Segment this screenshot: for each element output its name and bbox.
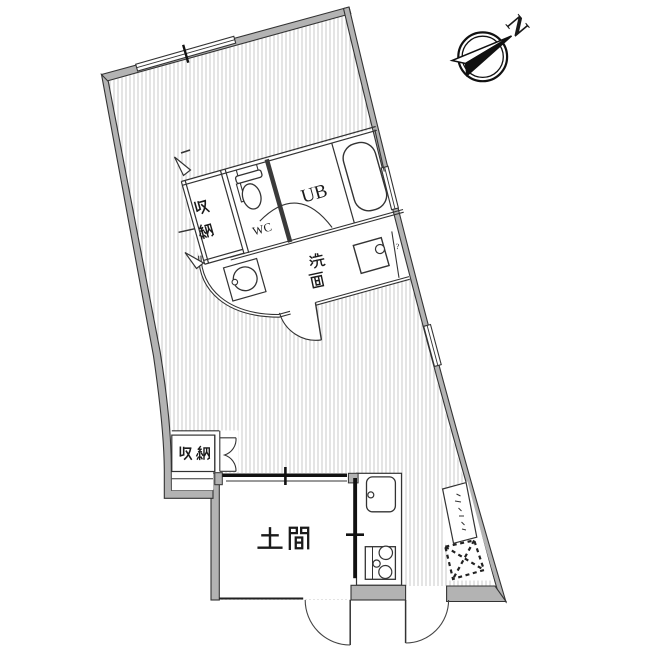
svg-text:?: ? [396, 242, 400, 251]
